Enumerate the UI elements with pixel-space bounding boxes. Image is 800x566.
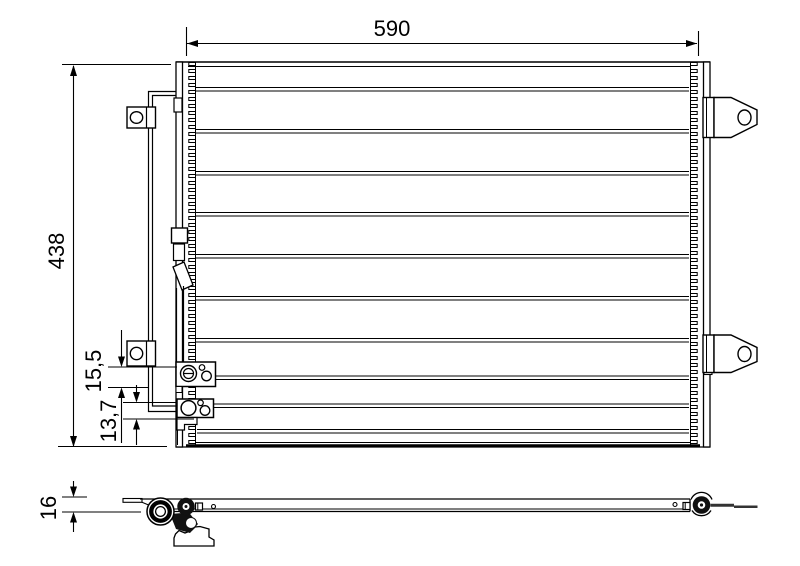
left-tank-tab — [174, 98, 182, 112]
bracket-bottom-left — [127, 341, 156, 366]
front-view — [127, 62, 757, 447]
bracket-top-right — [703, 98, 757, 138]
bracket-top-left — [127, 107, 156, 128]
bracket-hole — [130, 112, 142, 124]
dim-height-label: 438 — [44, 233, 69, 270]
side-view: 16 — [36, 481, 758, 546]
bracket-hole — [738, 110, 751, 125]
fin-edge-right — [690, 62, 698, 447]
fin-edge-left — [188, 62, 196, 447]
dim-width: 590 — [187, 16, 699, 56]
side-mounting-foot — [170, 513, 214, 547]
side-bar — [123, 499, 690, 512]
dim-lower-offset-label: 13,7 — [96, 400, 121, 443]
core — [176, 62, 710, 447]
page: 590 438 15,5 13,7 — [0, 0, 800, 566]
bracket-hole — [738, 347, 751, 362]
dim-depth: 16 — [36, 481, 141, 532]
dim-width-label: 590 — [374, 16, 411, 41]
side-right-fitting — [673, 492, 758, 515]
dim-upper-offset-label: 15,5 — [81, 350, 106, 393]
condenser-technical-drawing: 590 438 15,5 13,7 — [0, 0, 800, 566]
dim-depth-label: 16 — [36, 496, 61, 520]
bracket-bottom-right — [703, 335, 757, 375]
bracket-hole — [130, 347, 142, 359]
